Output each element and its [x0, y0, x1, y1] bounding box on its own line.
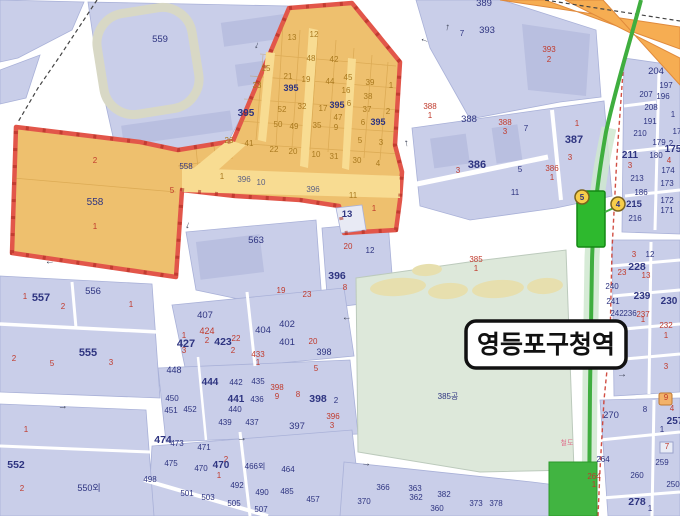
parcel-number-label: 5	[50, 359, 55, 368]
parcel-number-label: 17	[673, 127, 680, 136]
station-exit-badge: 5	[575, 190, 589, 204]
parcel-number-label: 213	[630, 174, 644, 183]
parcel-number-label: 5	[170, 186, 175, 195]
parcel-number-label: 7	[460, 29, 465, 38]
parcel-number-label: 370	[357, 497, 371, 506]
parcel-number-label: 552	[7, 459, 25, 471]
parcel-number-label: 39	[366, 78, 375, 87]
parcel-number-label: 6	[361, 118, 366, 127]
parcel-number-label: 397	[289, 421, 305, 432]
parcel-number-label: 9	[334, 123, 339, 132]
parcel-number-label: 13	[642, 271, 651, 280]
parcel-number-label: 16	[342, 86, 351, 95]
parcel-number-label: 3	[182, 346, 187, 355]
parcel-number-label: 26	[225, 136, 234, 145]
parcel-number-label: 12	[366, 246, 375, 255]
parcel-number-label: 1	[93, 222, 98, 231]
parcel-number-label: 232	[659, 321, 673, 330]
parcel-number-label: 485	[280, 487, 294, 496]
parcel-number-label: 507	[254, 505, 268, 514]
parcel-number-label: 492	[230, 481, 244, 490]
parcel-number-label: 386	[468, 159, 486, 171]
parcel-number-label: 1	[474, 264, 479, 273]
parcel-number-label: 452	[183, 405, 197, 414]
parcel-number-label: 260	[630, 471, 644, 480]
parcel-number-label: 1	[592, 480, 597, 489]
parcel-number-label: 442	[229, 378, 243, 387]
parcel-number-label: 1	[256, 358, 261, 367]
parcel-number-label: 3	[568, 153, 573, 162]
parcel-number-label: 240	[605, 282, 619, 291]
parcel-number-label: 3	[628, 161, 633, 170]
parcel-number-label: 362	[409, 493, 423, 502]
parcel-number-label: 440	[228, 405, 242, 414]
parcel-number-label: 393	[542, 45, 556, 54]
parcel-number-label: 398	[316, 347, 331, 357]
parcel-number-label: 186	[634, 188, 648, 197]
road-direction-arrow: ←	[341, 312, 352, 324]
parcel-number-label: 1	[575, 119, 580, 128]
parcel-number-label: 48	[307, 54, 316, 63]
parcel-number-label: 441	[228, 394, 245, 405]
parcel-number-label: 1	[648, 504, 653, 513]
parcel-number-label: 42	[330, 55, 339, 64]
parcel-number-label: 402	[279, 319, 295, 330]
parcel-number-label: 437	[245, 418, 259, 427]
parcel-number-label: 5	[314, 364, 319, 373]
parcel-number-label: 2	[547, 55, 552, 64]
parcel-number-label: 216	[628, 214, 642, 223]
parcel-number-label: 38	[364, 92, 373, 101]
parcel-number-label: 393	[479, 25, 495, 36]
parcel-number-label: 196	[656, 92, 670, 101]
parcel-number-label: 2	[12, 354, 17, 363]
parcel-number-label: 4	[376, 159, 381, 168]
parcel-number-label: 373	[469, 499, 483, 508]
parcel-number-label: 501	[180, 489, 194, 498]
parcel-number-label: 1	[671, 110, 676, 119]
parcel-number-label: 215	[626, 199, 643, 210]
parcel-number-label: 1	[550, 173, 555, 182]
parcel-number-label: 385	[469, 255, 483, 264]
parcel-number-label: 1	[428, 111, 433, 120]
parcel-number-label: 6	[347, 99, 352, 108]
parcel-number-label: 505	[227, 499, 241, 508]
parcel-number-label: 556	[85, 286, 101, 297]
parcel-number-label: 2	[205, 336, 210, 345]
parcel-number-label: 278	[628, 496, 646, 508]
station-south-structure	[549, 462, 597, 516]
parcel-number-label: 19	[302, 75, 311, 84]
parcel-number-label: 210	[633, 129, 647, 138]
parcel-number-label: 558	[179, 162, 193, 171]
parcel-number-label: 270	[603, 410, 619, 421]
parcel-number-label: 239	[634, 291, 651, 302]
parcel-number-label: 388	[498, 118, 512, 127]
parcel-number-label: 174	[661, 166, 675, 175]
exit-number-label: 4	[616, 200, 621, 209]
parcel-number-label: 1	[660, 425, 665, 434]
parcel-number-label: 3	[330, 421, 335, 430]
parcel-number-label: 23	[303, 290, 312, 299]
parcel-number-label: 21	[284, 72, 293, 81]
road-direction-arrow: →	[57, 401, 68, 413]
parcel-number-label: 10	[257, 178, 266, 187]
parcel-number-label: 1	[24, 425, 29, 434]
parcel-number-label: 1	[664, 331, 669, 340]
parcel-number-label: 45	[344, 73, 353, 82]
parcel-number-label: 7	[665, 442, 670, 451]
parcel-number-label: 171	[660, 206, 674, 215]
parcel-number-label: 173	[660, 179, 674, 188]
parcel-number-label: 3	[379, 138, 384, 147]
parcel-number-label: 12	[310, 30, 319, 39]
parcel-number-label: 386	[545, 164, 559, 173]
parcel-number-label: 490	[255, 488, 269, 497]
parcel-number-label: 395	[329, 100, 344, 110]
parcel-number-label: 2	[386, 107, 391, 116]
parcel-number-label: 444	[202, 377, 219, 388]
parcel-number-label: 7	[524, 124, 529, 133]
parcel-number-label: 474	[154, 434, 172, 446]
parcel-number-label: 207	[639, 90, 653, 99]
parcel-number-label: 20	[309, 337, 318, 346]
parcel-number-label: 3	[109, 358, 114, 367]
parcel-number-label: 2	[61, 302, 66, 311]
exit-number-label: 5	[580, 193, 585, 202]
parcel-number-label: 407	[197, 310, 213, 321]
parcel-number-label: 30	[353, 156, 362, 165]
parcel-number-label: 457	[306, 495, 320, 504]
parcel-number-label: 50	[274, 120, 283, 129]
parcel-number-label: 3	[456, 166, 461, 175]
parcel-number-label: 22	[232, 334, 241, 343]
parcel-number-label: 563	[248, 235, 264, 246]
parcel-number-label: 35	[313, 121, 322, 130]
parcel-number-label: 559	[152, 34, 168, 45]
parcel-number-label: 396	[237, 175, 251, 184]
map-viewport[interactable]: 54 ←↓→→→←→↑←↓↑ 5591312484215332119395444…	[0, 0, 680, 516]
station-label-text: 영등포구청역	[477, 331, 615, 359]
parcel-number-label: 550외	[77, 482, 100, 493]
parcel-number-label: 17	[319, 104, 328, 113]
parcel-number-label: 404	[255, 325, 271, 336]
parcel-number-label: 423	[214, 336, 232, 348]
parcel-number-label: 259	[655, 458, 669, 467]
parcel-number-label: 363	[408, 484, 422, 493]
parcel-number-label: 395	[283, 83, 298, 93]
parcel-number-label: 32	[298, 102, 307, 111]
parcel-number-label: 197	[659, 81, 673, 90]
parcel-number-label: 264	[596, 455, 610, 464]
parcel-number-label: 395	[238, 108, 255, 119]
parcel-number-label: 366	[376, 483, 390, 492]
parcel-number-label: 44	[326, 77, 335, 86]
road-direction-arrow: →	[617, 369, 627, 380]
parcel-number-label: 473	[170, 439, 184, 448]
parcel-number-label: 388	[461, 114, 477, 125]
parcel-number-label: 241	[606, 297, 620, 306]
parcel-number-label: 466외	[245, 461, 266, 471]
parcel-number-label: 387	[565, 134, 583, 146]
parcel-number-label: 33	[253, 81, 262, 90]
parcel-number-label: 191	[643, 117, 657, 126]
parcel-number-label: 257	[667, 416, 680, 427]
parcel-number-label: 11	[511, 188, 520, 197]
parcel-number-label: 12	[646, 250, 655, 259]
parcel-number-label: 10	[312, 150, 321, 159]
parcel-number-label: 3	[503, 127, 508, 136]
parcel-number-label: 204	[648, 66, 664, 77]
parcel-number-label: 236	[623, 309, 637, 318]
parcel-number-label: 211	[622, 150, 639, 161]
parcel-number-label: 470	[194, 464, 208, 473]
parcel-number-label: 503	[201, 493, 215, 502]
parcel-number-label: 1	[23, 292, 28, 301]
parcel-number-label: 242	[610, 309, 624, 318]
parcel-number-label: 1	[641, 315, 646, 324]
parcel-number-label: 9	[664, 393, 669, 402]
map-canvas[interactable]: 54 ←↓→→→←→↑←↓↑ 5591312484215332119395444…	[0, 0, 680, 516]
parcel-number-label: 13	[288, 33, 297, 42]
parcel-number-label: 22	[270, 145, 279, 154]
parcel-number-label: 498	[143, 475, 157, 484]
parcel-number-label: 558	[87, 197, 104, 208]
parcel-number-label: 2	[93, 156, 98, 165]
parcel-number-label: 49	[290, 122, 299, 131]
parcel-number-label: 4	[670, 404, 675, 413]
road-direction-arrow: →	[361, 458, 372, 470]
parcel-number-label: 424	[199, 326, 214, 336]
parcel-number-label: 3	[664, 362, 669, 371]
parcel-number-label: 9	[275, 392, 280, 401]
parcel-number-label: 450	[165, 394, 179, 403]
parcel-number-label: 13	[342, 209, 353, 220]
station-name-label: 영등포구청역	[466, 321, 626, 368]
parcel-number-label: 1	[220, 172, 225, 181]
parcel-number-label: 철도	[561, 438, 574, 447]
parcel-number-label: 20	[289, 147, 298, 156]
parcel-number-label: 436	[250, 395, 264, 404]
parcel-number-label: 464	[281, 465, 295, 474]
parcel-number-label: 4	[667, 156, 672, 165]
parcel-number-label: 557	[32, 292, 50, 304]
parcel-number-label: 41	[245, 139, 254, 148]
parcel-number-label: 5	[358, 136, 363, 145]
parcel-number-label: 382	[437, 490, 451, 499]
parcel-number-label: 20	[344, 242, 353, 251]
parcel-number-label: 378	[489, 499, 503, 508]
parcel-number-label: 360	[430, 504, 444, 513]
parcel-number-label: 1	[372, 204, 377, 213]
parcel-number-label: 11	[349, 191, 358, 200]
parcel-number-label: 385공	[438, 392, 459, 401]
parcel-number-label: 208	[644, 103, 658, 112]
parcel-number-label: 180	[649, 151, 663, 160]
parcel-number-label: 1	[389, 81, 394, 90]
parcel-number-label: 470	[213, 460, 230, 471]
parcel-number-label: 395	[370, 117, 385, 127]
parcel-number-label: 451	[164, 406, 178, 415]
parcel-number-label: 398	[309, 393, 327, 405]
parcel-number-label: 172	[660, 196, 674, 205]
parcel-number-label: 1	[129, 300, 134, 309]
parcel-number-label: 23	[618, 268, 627, 277]
parcel-number-label: 471	[197, 443, 211, 452]
parcel-number-label: 475	[164, 459, 178, 468]
road-direction-arrow: ←	[44, 256, 55, 268]
parcel-number-label: 52	[278, 105, 287, 114]
parcel-number-label: 230	[661, 296, 678, 307]
parcel-number-label: 8	[643, 405, 648, 414]
parcel-number-label: 31	[330, 152, 339, 161]
parcel-number-label: 401	[279, 337, 295, 348]
parcel-number-label: 2	[231, 346, 236, 355]
station-exit-badge: 4	[611, 197, 625, 211]
parcel-number-label: 388	[423, 102, 437, 111]
parcel-number-label: 439	[218, 418, 232, 427]
parcel-number-label: 448	[166, 365, 181, 375]
parcel-number-label: 19	[277, 286, 286, 295]
parcel-number-label: 250	[666, 480, 680, 489]
parcel-number-label: 396	[328, 270, 346, 282]
parcel-number-label: 8	[296, 390, 301, 399]
parcel-number-label: 47	[334, 113, 343, 122]
parcel-number-label: 8	[343, 283, 348, 292]
parcel-number-label: 2	[334, 396, 339, 405]
road-direction-arrow: →	[236, 433, 247, 445]
parcel-number-label: 398	[270, 383, 284, 392]
parcel-number-label: 389	[476, 0, 492, 9]
parcel-number-label: 15	[262, 64, 271, 73]
parcel-number-label: 175	[665, 144, 680, 155]
parcel-number-label: 555	[79, 347, 97, 359]
parcel-number-label: 5	[518, 165, 523, 174]
parcel-number-label: 37	[363, 105, 372, 114]
parcel-number-label: 396	[326, 412, 340, 421]
parcel-number-label: 396	[306, 185, 320, 194]
parcel-number-label: 2	[20, 484, 25, 493]
parcel-number-label: 3	[632, 250, 637, 259]
parcel-number-label: 435	[251, 377, 265, 386]
parcel-number-label: 1	[217, 471, 222, 480]
